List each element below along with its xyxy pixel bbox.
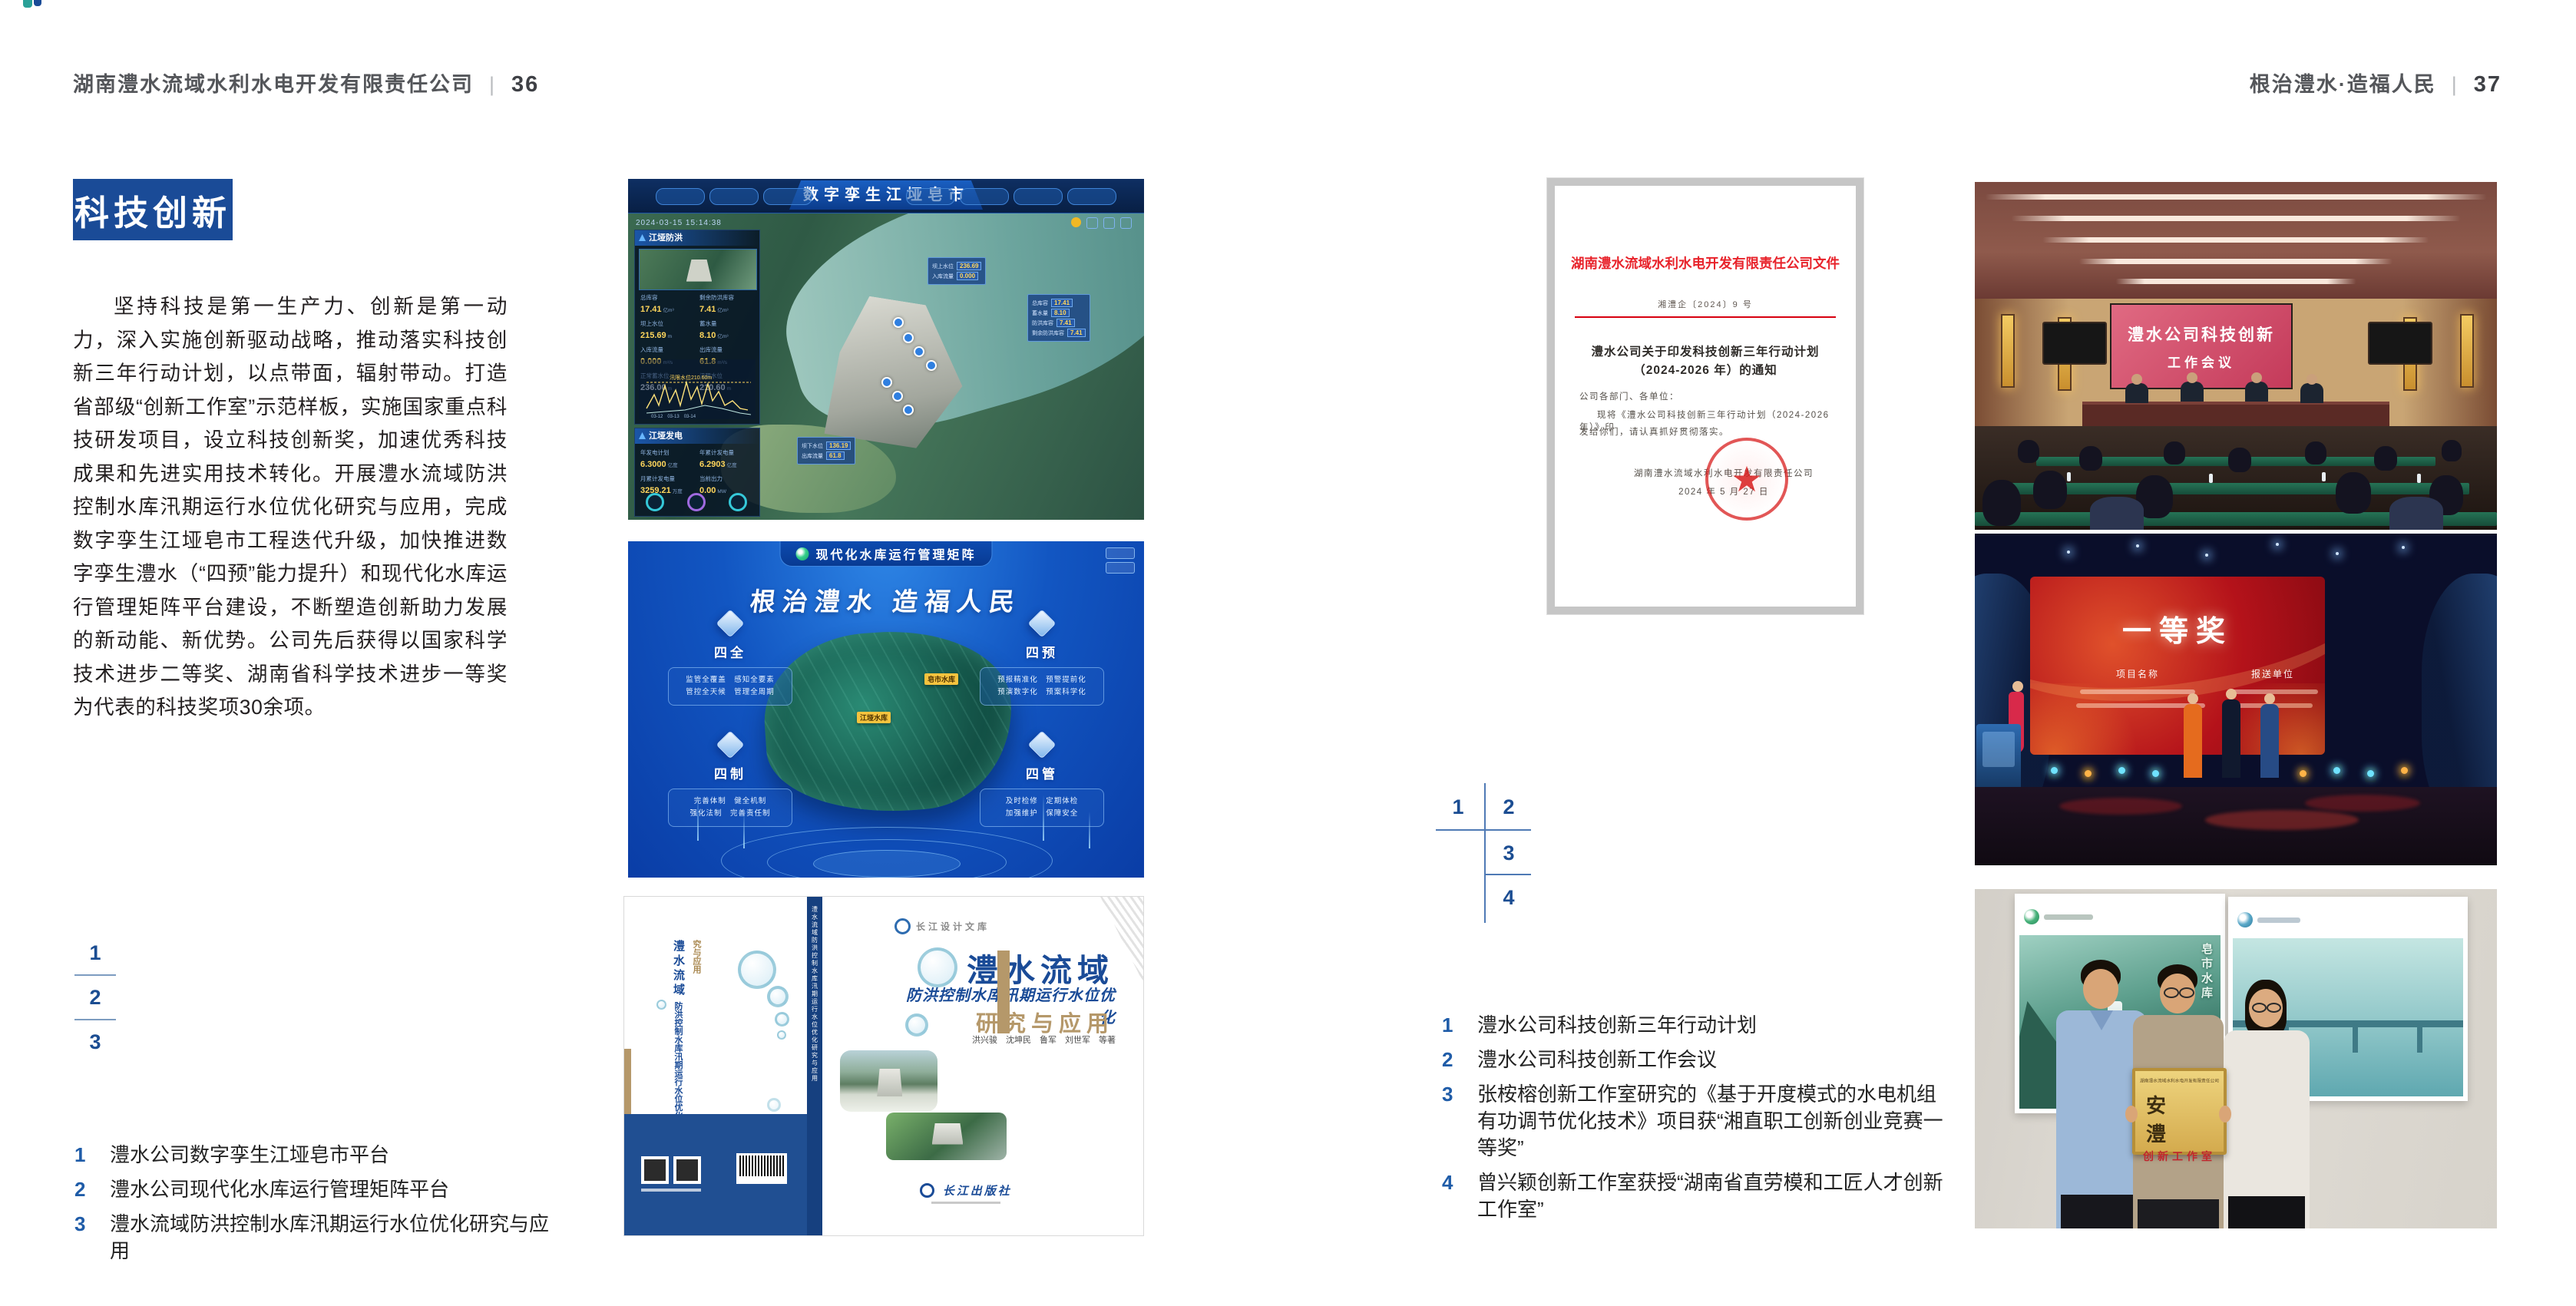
barcode-stripes [739,1156,784,1176]
person-pants [2138,1199,2219,1228]
cube-icon [1028,731,1057,759]
caption-text: 澧水公司科技创新三年行动计划 [1477,1012,1757,1039]
stage-light-fixture [2399,764,2410,779]
callout-value: 7.41 [1057,319,1075,327]
head-table [2082,402,2389,429]
publisher-mark: 长江出版社 [878,1182,1054,1204]
reservoir-tag: 江垭水库 [857,712,891,723]
nav-tab [763,188,812,205]
document-title-line: （2024-2026 年）的通知 [1555,361,1856,378]
figure-marker: 1 [74,941,116,964]
light-lens [2401,767,2408,774]
stat: 月累计发电量3259.21万度 [640,474,695,497]
gate-marker [914,346,924,357]
person-head [2083,969,2118,1009]
corner-title: 四管 [980,763,1104,782]
corner-block-siyu: 四预 预报精准化 预警提前化 预演数字化 预案科学化 [980,613,1104,706]
glasses-icon [2179,987,2194,998]
plaque-subtitle: 创新工作室 [2143,1149,2216,1164]
stat-label: 剩余防洪库容 [699,293,754,302]
plaque-title: 安 澧 [2146,1090,2224,1147]
floor-reflection [2305,795,2420,812]
floor-reflection [2205,810,2359,830]
callout-value: 136.19 [826,441,851,450]
corner-item: 及时检修 定期体检 [984,795,1100,808]
series-badge: 长江设计文库 [894,918,990,934]
callout-label: 蓄水量 [1032,309,1048,317]
attendee-silhouette [1982,480,2021,526]
cover-photo-dam [840,1050,937,1112]
book-spine: 澧水流域防洪控制水库汛期运行水位优化研究与应用 [807,897,822,1235]
panelist-silhouette [2300,383,2323,403]
stat-label: 出库流量 [699,346,754,354]
barcode [736,1153,787,1184]
corner-item: 监管全覆盖 感知全要素 [672,674,789,686]
qr-caption-bar [641,1189,701,1192]
wall-tv [2368,322,2432,365]
attendee-silhouette [2336,472,2371,514]
corner-item: 管控全天候 管理全周期 [672,686,789,699]
light-lens [2051,767,2058,774]
caption-row: 4 曾兴颖创新工作室获授“湖南省直劳模和工匠人才创新工作室” [1442,1169,1950,1223]
audience-area [1975,426,2497,530]
caption-number: 1 [74,1142,110,1169]
page-number: 36 [511,72,539,97]
body-paragraph: 坚持科技是第一生产力、创新是第一动力，深入实施创新驱动战略，推动落实科技创新三年… [73,290,508,725]
stage-light-fixture [2049,764,2060,779]
marker-divider [74,974,116,976]
light-lens [2333,767,2340,774]
nav-tab [906,188,955,205]
glasses-icon [2164,987,2179,998]
panelist-silhouette [2245,382,2268,402]
tool-icon [1086,217,1098,229]
poster-vertical-label: 皂市水库 [2198,943,2214,1001]
publisher-name: 长江出版社 [943,1185,1012,1198]
figure-meeting-photo: 澧水公司科技创新 工作会议 [1975,182,2497,530]
back-cover-title: 澧水流域 防洪控制水库汛期运行水位优化 研究与应用 [669,940,706,1132]
qr-code [641,1156,669,1184]
company-name: 湖南澧水流域水利水电开发有限责任公司 [73,73,474,96]
callout-upstream: 坝上水位236.69 入库流量0.000 [928,257,986,285]
publisher-logo-icon [920,1183,934,1198]
floor-reflection [2059,798,2182,815]
person-pants [2228,1196,2305,1228]
stat-value: 6.3000 [640,460,666,469]
stat-label: 月累计发电量 [640,474,695,483]
gate-marker [926,360,937,371]
caption-number: 1 [1442,1012,1477,1039]
stat: 剩余防洪库容7.41亿m³ [699,293,754,316]
figure-book-cover: 澧水流域 防洪控制水库汛期运行水位优化 研究与应用 澧水流域防洪控制水库汛期运行… [623,896,1144,1236]
caption-number: 3 [1442,1081,1477,1162]
cube-icon [716,610,745,638]
caption-row: 1 澧水公司科技创新三年行动计划 [1442,1012,1950,1039]
spine-title: 澧水流域防洪控制水库汛期运行水位优化研究与应用 [811,906,819,1213]
nav-tab [960,188,1009,205]
motto: 根治澧水·造福人民 [2250,73,2436,96]
attendee-silhouette [2090,497,2144,530]
callout-row: 坝上水位236.69 [932,262,981,270]
stage-spot [2067,551,2070,554]
cover-photo-dam-structure [932,1123,964,1145]
awardee-blue [2260,704,2279,778]
caption-number: 2 [74,1176,110,1203]
figure-marker: 2 [1497,795,1520,818]
corner-panel: 预报精准化 预警提前化 预演数字化 预案科学化 [980,667,1104,706]
caption-row: 3 张桉榕创新工作室研究的《基于开度模式的水电机组有功调节优化技术》项目获“湘直… [1442,1081,1950,1162]
tool-icon [1120,217,1132,229]
stat: 当前出力0.00MW [699,474,754,497]
matrix-toolbar-button [1106,562,1135,574]
stat-unit: 亿度 [727,463,737,468]
stat: 坝上水位215.69m [640,319,695,342]
award-title: 一等奖 [2030,607,2325,650]
glasses-icon [2252,1003,2267,1013]
caption-text: 澧水公司现代化水库运行管理矩阵平台 [110,1176,449,1203]
stat-label: 入库流量 [640,346,695,354]
right-page-header: 根治澧水·造福人民|37 [2250,68,2502,98]
stat-label: 总库容 [640,293,695,302]
water-drop [767,1098,781,1112]
stat-value: 8.10 [699,331,716,340]
water-bottle [2322,472,2326,481]
lhpc-logo-icon [795,547,809,560]
user-icon [1071,217,1081,227]
corner-item: 强化法制 完善责任制 [672,808,789,820]
tool-icon [1103,217,1115,229]
stage-spot [2402,546,2405,549]
stage-light-fixture [2297,767,2309,782]
corner-panel: 完善体制 健全机制 强化法制 完善责任制 [668,789,792,827]
header-divider: | [2452,73,2459,96]
plaque-org-line: 湖南澧水流域水利水电开发有限责任公司 [2140,1077,2219,1084]
caption-row: 1 澧水公司数字孪生江垭皂市平台 [74,1142,551,1169]
flood-panel: 江垭防洪 总库容17.41亿m³ 剩余防洪库容7.41亿m³ 坝上水位215.6… [634,230,760,425]
stat: 年累计发电量6.2903亿度 [699,448,754,471]
green-table-row [2002,483,2469,494]
figure-plaque-group-photo: 皂市水库 [1975,889,2497,1228]
stat-label: 年发电计划 [640,448,695,457]
callout-row: 出库流量61.8 [802,451,851,460]
gate-marker [903,332,914,343]
publisher-logo-icon [894,918,911,934]
screen-title-line: 工作会议 [2168,352,2235,371]
water-bottle [2067,472,2071,481]
callout-row: 入库流量0.000 [932,272,981,280]
poster-logo-text-bar [2044,914,2093,920]
corner-panel: 监管全覆盖 感知全要素 管控全天候 管理全周期 [668,667,792,706]
callout-value: 236.69 [957,262,981,270]
official-seal: ★ [1705,438,1788,521]
marker-hline [1484,874,1531,875]
stage-light-fixture [2082,767,2094,782]
attendee-silhouette [2374,446,2397,471]
stat-label: 当前出力 [699,474,754,483]
screen-glow [2030,683,2148,755]
water-drop [777,1030,786,1040]
corner-item: 预报精准化 预警提前化 [984,674,1100,686]
matrix-title: 现代化水库运行管理矩阵 [815,544,976,563]
power-stats: 年发电计划6.3000亿度 年累计发电量6.2903亿度 月累计发电量3259.… [640,448,754,497]
callout-capacity: 总库容17.41 蓄水量8.10 防洪库容7.41 剩余防洪库容7.41 [1027,294,1090,342]
shirt-collar [2090,1010,2113,1030]
light-lens [2300,770,2306,777]
stage-light-fixture [2331,764,2343,779]
document-salutation: 公司各部门、各单位： [1579,390,1831,402]
page-number: 37 [2474,72,2502,97]
corner-title: 四预 [980,642,1104,661]
person-hand [2219,1106,2231,1122]
qr-code [673,1156,701,1184]
stat-unit: 万度 [673,489,683,494]
publisher-sub-bar [931,1202,1000,1204]
nav-tab [709,188,759,205]
caption-text: 张桉榕创新工作室研究的《基于开度模式的水电机组有功调节优化技术》项目获“湘直职工… [1477,1081,1950,1162]
gate-marker [903,405,914,415]
right-figure-markers: 1 2 3 4 [1436,783,1536,931]
attendee-silhouette [2228,448,2251,472]
caption-text: 澧水公司科技创新工作会议 [1477,1046,1717,1073]
reservoir-tag: 皂市水库 [924,673,958,685]
light-strip [1986,194,2487,200]
figure-marker: 4 [1497,886,1520,909]
poster-header [2233,901,2463,938]
nav-tab [656,188,705,205]
stat-unit: MW [717,489,726,494]
stat-value: 215.69 [640,331,666,340]
left-captions: 1 澧水公司数字孪生江垭皂市平台 2 澧水公司现代化水库运行管理矩阵平台 3 澧… [74,1142,551,1272]
document-red-rule [1575,316,1836,318]
series-name: 长江设计文库 [916,920,990,933]
document-header: 湖南澧水流域水利水电开发有限责任公司文件 [1555,253,1856,273]
stage-spot [2205,554,2208,557]
light-strip [2116,279,2356,284]
page-corner-mark [23,0,43,9]
stage-spot [2336,552,2339,555]
callout-label: 总库容 [1032,299,1048,307]
person-pants [2061,1195,2142,1228]
stat-unit: 亿m³ [717,308,728,313]
stage-light-fixture [2116,764,2128,779]
attendee-silhouette [2442,440,2462,461]
callout-label: 坝上水位 [932,263,954,270]
attendee-silhouette [2033,471,2067,509]
caption-number: 2 [1442,1046,1477,1073]
dam-thumbnail-dam [686,260,712,282]
figure-matrix-platform: 现代化水库运行管理矩阵 根治澧水 造福人民 皂市水库 江垭水库 四全 监管全覆盖… [628,541,1144,878]
back-title-line: 防洪控制水库汛期运行水位优化 [673,1001,683,1119]
caption-row: 2 澧水公司现代化水库运行管理矩阵平台 [74,1176,551,1203]
stage-floor [1975,787,2497,865]
caption-number: 4 [1442,1169,1477,1223]
document-number: 湘澧企〔2024〕9 号 [1555,298,1856,310]
back-title-line: 澧水流域 [672,940,685,998]
light-strip [2042,237,2429,243]
bridge-pier [2417,1027,2422,1053]
figure-marker: 1 [1447,795,1470,818]
water-level-chart: 汛限水位210.60m 03-12 03-13 03-14 [639,359,756,419]
section-badge: 科技创新 [73,179,233,240]
book-authors: 洪兴骏 沈坤民 鲁军 刘世军 等著 [937,1033,1116,1046]
stat-label: 蓄水量 [699,319,754,328]
callout-row: 剩余防洪库容7.41 [1032,329,1086,337]
stat-unit: 亿m³ [663,308,674,313]
figure-official-document: 湖南澧水流域水利水电开发有限责任公司文件 湘澧企〔2024〕9 号 澧水公司关于… [1547,178,1863,614]
stat-label: 坝上水位 [640,319,695,328]
stat-unit: 亿度 [668,463,678,468]
water-drop [738,951,776,989]
bridge-pier [2353,1027,2358,1053]
stat-unit: m [668,334,672,339]
podium-panel [1982,732,2015,767]
water-drop [918,947,957,987]
cube-icon [716,731,745,759]
stat-value: 7.41 [699,305,716,314]
wall-tv [2042,322,2107,365]
person-hand [2125,1106,2138,1122]
dashboard-datetime: 2024-03-15 15:14:38 [636,219,722,227]
light-lens [2118,767,2125,774]
attendee-silhouette [2164,441,2185,465]
screen-title-line: 澧水公司科技创新 [2128,322,2275,346]
callout-value: 17.41 [1051,299,1073,307]
nav-tab [1014,188,1063,205]
figure-marker: 2 [74,986,116,1009]
light-pillar [697,795,699,841]
callout-label: 坝下水位 [802,442,823,450]
stage-spot [2276,543,2279,546]
chart-note: 汛限水位210.60m [670,374,712,381]
corner-block-siquan: 四全 监管全覆盖 感知全要素 管控全天候 管理全周期 [668,613,792,706]
caption-text: 澧水流域防洪控制水库汛期运行水位优化研究与应用 [110,1211,551,1265]
cube-icon [1028,610,1057,638]
marker-hline [1436,829,1531,831]
halo-ring [813,850,961,878]
innovation-workshop-plaque: 湖南澧水流域水利水电开发有限责任公司 安 澧 创新工作室 [2132,1068,2227,1155]
awardee-orange [2184,704,2202,778]
corner-panel: 及时检修 定期体检 加强维护 保障安全 [980,789,1104,827]
callout-downstream: 坝下水位136.19 出库流量61.8 [797,437,855,465]
stage-spot [2136,544,2139,547]
caption-text: 曾兴颖创新工作室获授“湖南省直劳模和工匠人才创新工作室” [1477,1169,1950,1223]
callout-value: 61.8 [826,451,845,460]
light-pillar [1089,812,1090,848]
stat: 总库容17.41亿m³ [640,293,695,316]
dam-thumbnail [639,249,757,290]
callout-row: 蓄水量8.10 [1032,309,1086,317]
light-lens [2367,770,2374,777]
marker-divider [74,1019,116,1020]
water-bottle [2209,474,2213,483]
host-podium [1976,724,2021,795]
attendee-silhouette [2389,497,2443,530]
light-lens [2152,770,2159,777]
panelist-silhouette [2181,382,2204,402]
document-body-line: 发给你们，请认真抓好贯彻落实。 [1579,425,1831,438]
caption-row: 3 澧水流域防洪控制水库汛期运行水位优化研究与应用 [74,1211,551,1265]
callout-label: 入库流量 [932,273,954,280]
cover-photo-dam-structure [877,1069,902,1096]
matrix-toolbar-button [1106,547,1135,559]
nav-tab [1067,188,1116,205]
document-title-line: 澧水公司关于印发科技创新三年行动计划 [1555,342,1856,359]
poster-logo-text-bar [2257,918,2300,923]
flood-panel-title: 江垭防洪 [635,230,759,246]
brochure-spread: 湖南澧水流域水利水电开发有限责任公司|36 根治澧水·造福人民|37 科技创新 … [0,0,2576,1306]
caption-text: 澧水公司数字孪生江垭皂市平台 [110,1142,389,1169]
lhpc-logo-icon [2024,909,2039,924]
stat-value: 6.2903 [699,460,726,469]
chart-x-labels: 03-12 03-13 03-14 [651,415,696,419]
callout-label: 防洪库容 [1032,319,1053,327]
page-corner-mark [23,0,32,8]
corner-item: 完善体制 健全机制 [672,795,789,808]
power-panel: 江垭发电 年发电计划6.3000亿度 年累计发电量6.2903亿度 月累计发电量… [634,428,760,517]
front-tan-bar [997,951,1010,1033]
caption-number: 3 [74,1211,110,1265]
gate-marker [893,317,904,328]
light-pillar [743,812,745,848]
attendee-silhouette [2018,440,2039,463]
stat-value: 17.41 [640,305,662,314]
seal-star-icon: ★ [1731,461,1762,497]
stat: 年发电计划6.3000亿度 [640,448,695,471]
caption-row: 2 澧水公司科技创新工作会议 [1442,1046,1950,1073]
callout-row: 总库容17.41 [1032,299,1086,307]
matrix-header: 现代化水库运行管理矩阵 [779,541,992,567]
left-page-header: 湖南澧水流域水利水电开发有限责任公司|36 [73,68,539,98]
light-strip [2012,216,2461,221]
callout-label: 剩余防洪库容 [1032,329,1064,337]
wall-lamp [2460,314,2474,388]
award-column-label: 报送单位 [2251,669,2294,679]
matrix-slogan: 根治澧水 造福人民 [628,581,1144,618]
left-figure-markers: 1 2 3 [74,941,116,1053]
corner-item: 预演数字化 预案科学化 [984,686,1100,699]
corner-title: 四全 [668,642,792,661]
figure-marker: 3 [1497,841,1520,865]
power-panel-title: 江垭发电 [635,428,759,444]
figure-award-ceremony: 一等奖 项目名称 报送单位 [1975,534,2497,865]
turbine-icon [646,493,664,511]
attendee-silhouette [2079,446,2102,471]
stat-value: 0.00 [699,486,716,495]
callout-value: 7.41 [1067,329,1086,337]
light-lens [2085,770,2092,777]
award-column-label: 项目名称 [2116,669,2159,679]
presenter-suit [2222,699,2240,778]
turbine-icon [729,493,747,511]
light-strip [2079,259,2392,264]
stat-unit: 亿m³ [717,334,728,339]
lhpc-logo-icon [2237,912,2253,927]
back-cover-tan-chip [624,1049,631,1116]
attendee-silhouette [2305,441,2326,465]
light-pillar [1043,795,1044,841]
callout-value: 0.000 [957,272,978,280]
poster-header [2019,898,2221,935]
corner-item: 加强维护 保障安全 [984,808,1100,820]
stat-label: 年累计发电量 [699,448,754,457]
led-screen: 一等奖 项目名称 报送单位 [2030,577,2325,755]
figure-marker: 3 [74,1030,116,1053]
header-divider: | [489,73,496,96]
callout-value: 8.10 [1051,309,1070,317]
page-corner-mark [34,0,41,6]
glasses-icon [2267,1003,2281,1013]
water-drop [767,986,789,1007]
